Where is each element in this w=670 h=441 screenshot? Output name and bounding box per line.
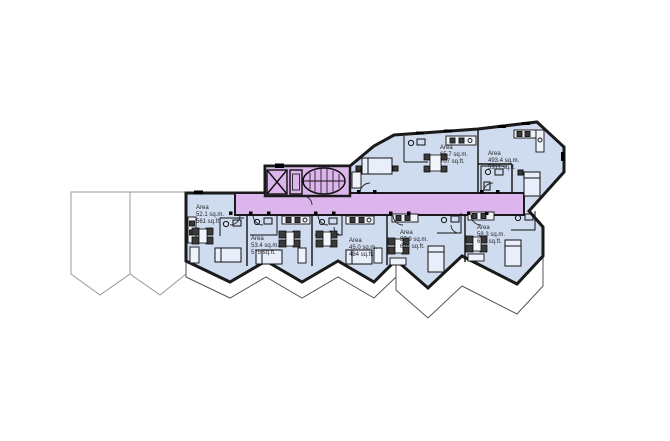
kitchen-unit-4 bbox=[392, 214, 418, 222]
area-heading: Area bbox=[400, 230, 428, 237]
area-label-unit-2: Area 53.4 sq.m. 575 sq.ft. bbox=[251, 236, 279, 257]
bed-unit-1 bbox=[215, 248, 241, 262]
ghost-bay-left bbox=[71, 192, 130, 295]
area-metric: 45.0 sq.m. bbox=[349, 245, 377, 252]
area-imperial: 627 sq.ft. bbox=[477, 239, 505, 246]
kitchen-unit-2 bbox=[282, 216, 310, 224]
area-label-unit-4: Area 57.9 sq.m. 624 sq.ft. bbox=[400, 230, 428, 251]
area-metric: 53.4 sq.m. bbox=[251, 243, 279, 250]
floor-plan-page: Area 52.1 sq.m. 561 sq.ft. Area 53.4 sq.… bbox=[0, 0, 670, 441]
bed-unit-4 bbox=[428, 246, 444, 272]
area-imperial: 707 sq.ft. bbox=[440, 159, 468, 166]
area-imperial: 5311 sq.ft. bbox=[488, 165, 519, 172]
wardrobe-unit-2 bbox=[298, 248, 306, 263]
spiral-staircase bbox=[303, 168, 345, 194]
area-label-unit-5: Area 58.3 sq.m. 627 sq.ft. bbox=[477, 225, 505, 246]
area-metric: 58.3 sq.m. bbox=[477, 232, 505, 239]
area-imperial: 624 sq.ft. bbox=[400, 244, 428, 251]
area-metric: 65.7 sq.m. bbox=[440, 152, 468, 159]
area-label-unit-3: Area 45.0 sq.m. 484 sq.ft. bbox=[349, 238, 377, 259]
bed-unit-6 bbox=[356, 158, 398, 174]
ghost-bay-right bbox=[130, 192, 186, 295]
floor-plan-svg bbox=[0, 0, 670, 441]
area-heading: Area bbox=[196, 205, 224, 212]
area-label-unit-1: Area 52.1 sq.m. 561 sq.ft. bbox=[196, 205, 224, 226]
area-heading: Area bbox=[440, 145, 468, 152]
area-metric: 57.9 sq.m. bbox=[400, 237, 428, 244]
area-label-unit-6: Area 65.7 sq.m. 707 sq.ft. bbox=[440, 145, 468, 166]
area-heading: Area bbox=[488, 151, 519, 158]
area-metric: 493.4 sq.m. bbox=[488, 158, 519, 165]
area-heading: Area bbox=[477, 225, 505, 232]
wardrobe-unit-1 bbox=[190, 247, 199, 263]
sofa-unit-5 bbox=[468, 254, 484, 261]
ghost-building-outline bbox=[71, 192, 186, 295]
area-heading: Area bbox=[349, 238, 377, 245]
area-imperial: 484 sq.ft. bbox=[349, 252, 377, 259]
sofa-unit-4 bbox=[390, 258, 406, 265]
kitchen-unit-3 bbox=[346, 216, 374, 224]
area-imperial: 575 sq.ft. bbox=[251, 250, 279, 257]
kitchen-unit-6 bbox=[446, 136, 476, 145]
area-heading: Area bbox=[251, 236, 279, 243]
area-label-unit-7: Area 493.4 sq.m. 5311 sq.ft. bbox=[488, 151, 519, 172]
wardrobe-unit-6 bbox=[352, 172, 361, 188]
area-imperial: 561 sq.ft. bbox=[196, 219, 224, 226]
bed-unit-5 bbox=[505, 240, 521, 266]
area-metric: 52.1 sq.m. bbox=[196, 212, 224, 219]
